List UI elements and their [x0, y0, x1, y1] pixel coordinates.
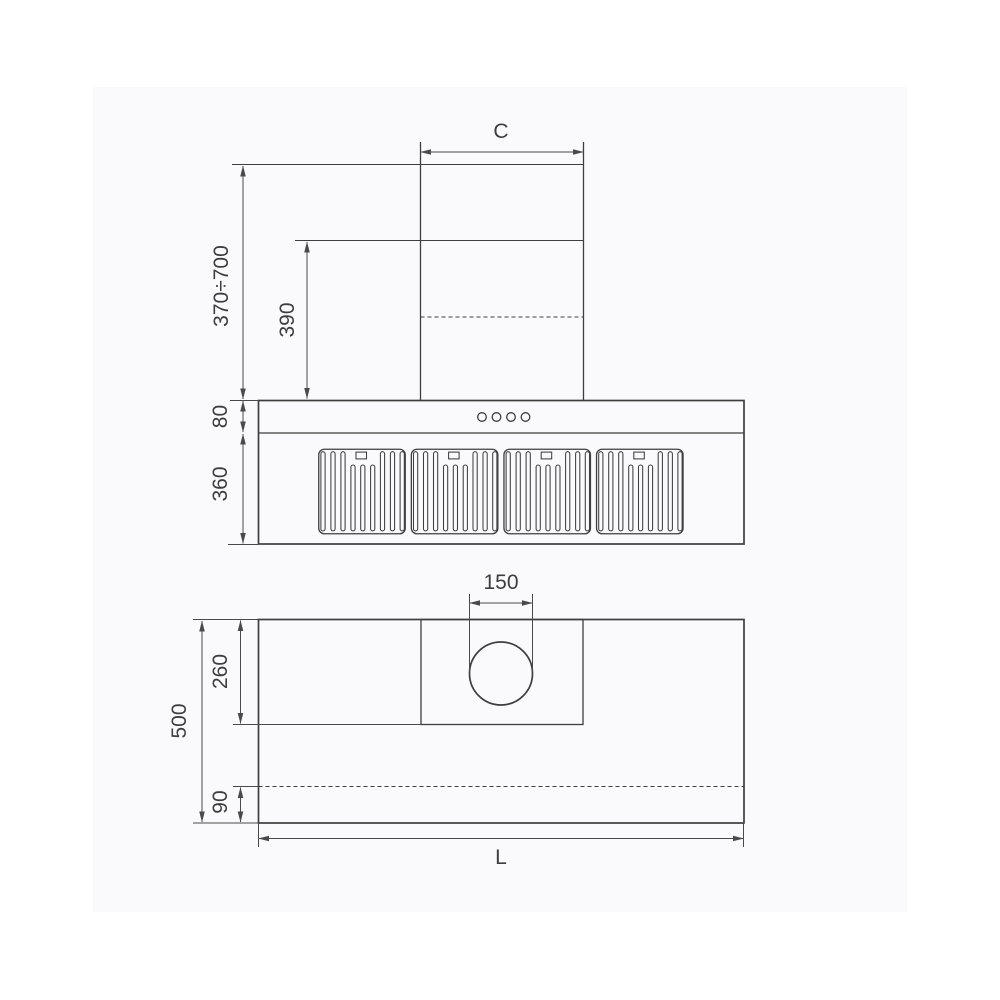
- dim-label-total-depth: 500: [168, 703, 191, 738]
- dim-label-duct-box-depth: 260: [209, 654, 232, 689]
- dim-label-chimney-height-range: 370÷700: [210, 245, 233, 327]
- dim-label-control-band-height: 80: [209, 405, 232, 428]
- dim-label-duct-diameter: 150: [483, 571, 518, 594]
- dim-label-total-length: L: [495, 846, 507, 869]
- dim-label-body-height: 360: [209, 466, 232, 501]
- range-hood-dimension-drawing: C 370÷700 390 80 360: [0, 0, 1000, 1000]
- dim-label-rear-offset: 90: [209, 790, 232, 813]
- dim-label-chimney-width: C: [493, 120, 508, 143]
- screenshot-canvas: C 370÷700 390 80 360: [0, 0, 1000, 1000]
- dim-label-telescopic-height: 390: [276, 302, 299, 337]
